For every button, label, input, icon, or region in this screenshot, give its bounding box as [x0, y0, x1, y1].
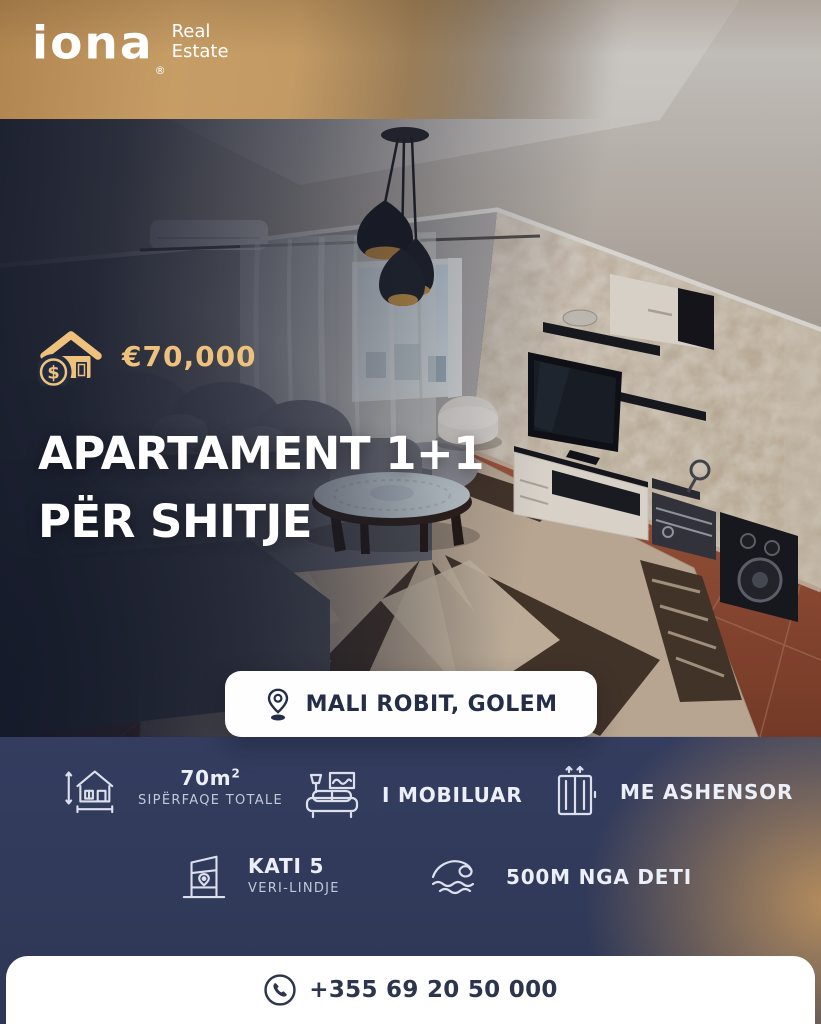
- feature-floor: KATI 5 VERI-LINDJE: [180, 845, 340, 905]
- price-value: €70,000: [122, 340, 257, 373]
- feature-value: 500M NGA DETI: [506, 865, 692, 889]
- feature-value: I MOBILUAR: [382, 783, 523, 807]
- building-pin-icon: [180, 845, 228, 905]
- location-pill: MALI ROBIT, GOLEM: [225, 671, 597, 737]
- feature-value: 70m2: [180, 766, 240, 790]
- map-pin-icon: [264, 687, 292, 721]
- location-label: MALI ROBIT, GOLEM: [306, 692, 558, 717]
- title-line-1: APARTAMENT 1+1: [38, 420, 484, 488]
- sofa-icon: [302, 769, 362, 821]
- feature-sea-distance: 500M NGA DETI: [428, 855, 692, 899]
- svg-text:$: $: [47, 363, 60, 384]
- feature-value: KATI 5: [248, 854, 340, 878]
- phone-icon: [263, 973, 297, 1007]
- phone-number: +355 69 20 50 000: [309, 977, 557, 1003]
- feature-total-area: 70m2 SIPËRFAQE TOTALE: [62, 759, 283, 815]
- feature-furnished: I MOBILUAR: [302, 769, 523, 821]
- brand-tagline: Real Estate: [172, 22, 229, 62]
- feature-value: ME ASHENSOR: [620, 780, 793, 804]
- listing-title: APARTAMENT 1+1 PËR SHITJE: [38, 420, 484, 555]
- brand-tagline-line2: Estate: [172, 42, 229, 62]
- feature-label: SIPËRFAQE TOTALE: [138, 793, 283, 808]
- feature-label: VERI-LINDJE: [248, 881, 340, 896]
- house-dollar-icon: $: [38, 326, 104, 386]
- brand-tagline-line1: Real: [172, 22, 229, 42]
- price-badge: $ €70,000: [38, 326, 257, 386]
- elevator-icon: [552, 763, 600, 821]
- listing-poster: iona ® Real Estate $ €70,000 APARTAMENT …: [0, 0, 821, 1024]
- wave-icon: [428, 855, 486, 899]
- feature-elevator: ME ASHENSOR: [552, 763, 793, 821]
- contact-bar[interactable]: +355 69 20 50 000: [6, 956, 815, 1024]
- house-measure-icon: [62, 759, 118, 815]
- brand-logo: iona ® Real Estate: [32, 20, 229, 77]
- title-line-2: PËR SHITJE: [38, 488, 484, 556]
- brand-logo-text: iona: [32, 21, 154, 66]
- apartment-photo: iona ® Real Estate $ €70,000 APARTAMENT …: [0, 0, 821, 737]
- registered-trademark: ®: [155, 64, 166, 77]
